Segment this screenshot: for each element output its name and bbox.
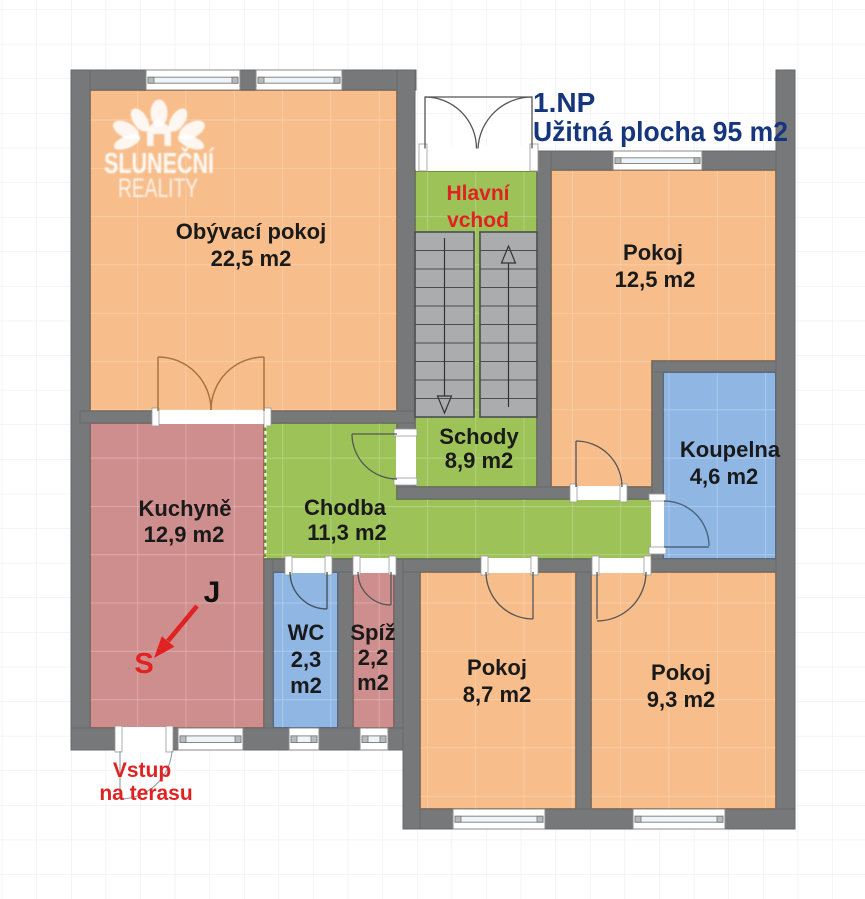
- svg-text:Hlavní: Hlavní: [446, 182, 510, 205]
- svg-text:9,3 m2: 9,3 m2: [647, 687, 716, 712]
- svg-text:na terasu: na terasu: [99, 782, 192, 805]
- svg-text:1.NP: 1.NP: [533, 87, 595, 118]
- svg-text:m2: m2: [357, 670, 389, 695]
- svg-text:Pokoj: Pokoj: [467, 655, 527, 680]
- svg-text:Užitná plocha 95 m2: Užitná plocha 95 m2: [533, 116, 788, 147]
- svg-text:Koupelna: Koupelna: [680, 437, 781, 462]
- svg-text:2,2: 2,2: [358, 645, 389, 670]
- svg-text:Pokoj: Pokoj: [623, 240, 683, 265]
- svg-text:Spíž: Spíž: [350, 620, 395, 645]
- svg-text:vchod: vchod: [447, 209, 509, 232]
- svg-text:Pokoj: Pokoj: [651, 660, 711, 685]
- svg-text:8,7 m2: 8,7 m2: [463, 682, 532, 707]
- svg-text:J: J: [204, 576, 221, 609]
- svg-text:12,9 m2: 12,9 m2: [144, 522, 225, 547]
- svg-text:Obývací pokoj: Obývací pokoj: [176, 219, 326, 244]
- svg-text:8,9 m2: 8,9 m2: [445, 448, 514, 473]
- svg-text:Kuchyně: Kuchyně: [139, 496, 232, 521]
- svg-text:S: S: [134, 648, 153, 680]
- svg-text:Schody: Schody: [439, 424, 519, 449]
- svg-text:WC: WC: [288, 620, 325, 645]
- svg-text:Chodba: Chodba: [304, 495, 387, 520]
- svg-text:22,5 m2: 22,5 m2: [211, 246, 292, 271]
- svg-text:2,3: 2,3: [291, 647, 322, 672]
- svg-text:m2: m2: [290, 673, 322, 698]
- svg-text:4,6 m2: 4,6 m2: [690, 464, 759, 489]
- svg-text:REALITY: REALITY: [118, 173, 198, 203]
- svg-text:12,5 m2: 12,5 m2: [615, 267, 696, 292]
- svg-text:11,3 m2: 11,3 m2: [307, 520, 387, 545]
- svg-text:Vstup: Vstup: [113, 759, 171, 782]
